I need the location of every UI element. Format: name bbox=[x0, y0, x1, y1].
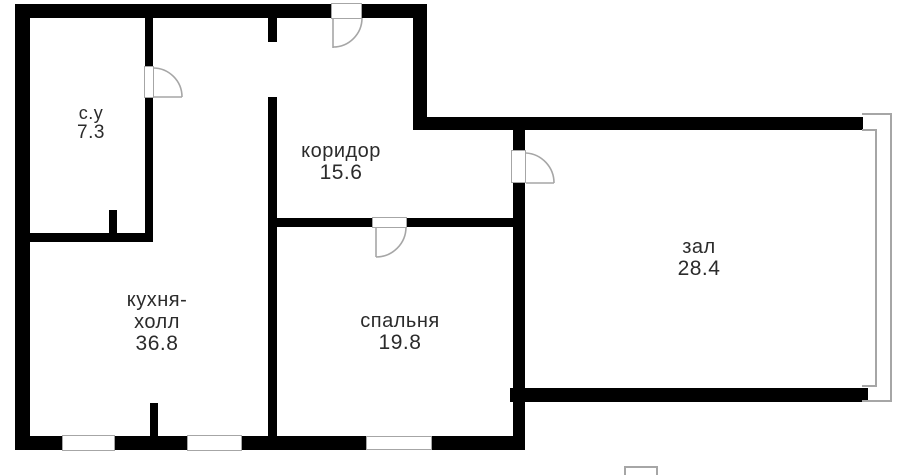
window-bedroom bbox=[366, 436, 432, 450]
wall-kitchen-stub bbox=[150, 403, 158, 436]
wall-corridor-left-stub bbox=[268, 18, 277, 42]
wall-outer-left bbox=[15, 4, 30, 450]
room-name-line2: холл bbox=[127, 311, 188, 333]
bathroom-door-arc bbox=[153, 68, 182, 97]
room-name: коридор bbox=[301, 140, 381, 162]
room-label-bathroom: с.у 7.3 bbox=[77, 104, 105, 142]
hall-window-inner-bottom bbox=[862, 385, 876, 387]
wall-bathroom-bottom bbox=[30, 233, 152, 242]
hall-door-arc bbox=[526, 153, 554, 183]
bathroom-door-frame bbox=[144, 66, 154, 98]
wall-corridor-right-upper bbox=[413, 4, 427, 130]
room-label-corridor: коридор 15.6 bbox=[301, 140, 381, 184]
room-area: 36.8 bbox=[127, 333, 188, 355]
window-kitchen-1 bbox=[62, 435, 115, 451]
window-kitchen-2 bbox=[187, 435, 242, 451]
entry-door-frame bbox=[331, 3, 362, 19]
room-label-bedroom: спальня 19.8 bbox=[360, 310, 439, 354]
wall-hall-top bbox=[413, 117, 863, 130]
hall-window-outer-bottom bbox=[862, 400, 892, 402]
room-area: 15.6 bbox=[301, 162, 381, 184]
wall-bathroom-stub bbox=[109, 210, 117, 236]
legend-box bbox=[624, 466, 658, 475]
wall-bathroom-right bbox=[145, 18, 153, 242]
bedroom-door-arc bbox=[376, 227, 406, 257]
room-area: 19.8 bbox=[360, 332, 439, 354]
wall-bedroom-left bbox=[268, 97, 277, 436]
room-label-kitchen-hall: кухня- холл 36.8 bbox=[127, 289, 188, 355]
hall-window-inner-top bbox=[862, 129, 876, 131]
room-name: кухня- bbox=[127, 289, 188, 311]
bedroom-door-frame bbox=[372, 217, 407, 228]
room-name: зал bbox=[678, 236, 721, 258]
room-name: с.у bbox=[77, 104, 105, 123]
entry-door-arc bbox=[333, 18, 362, 47]
room-label-hall: зал 28.4 bbox=[678, 236, 721, 280]
hall-window-outer-right bbox=[890, 113, 892, 402]
room-area: 7.3 bbox=[77, 123, 105, 142]
wall-hall-bottom bbox=[510, 388, 868, 402]
hall-window-outer-top bbox=[862, 113, 892, 115]
hall-window-inner-line bbox=[875, 129, 877, 387]
room-area: 28.4 bbox=[678, 258, 721, 280]
floor-plan: с.у 7.3 коридор 15.6 кухня- холл 36.8 сп… bbox=[0, 0, 910, 475]
hall-door-frame bbox=[511, 150, 526, 183]
room-name: спальня bbox=[360, 310, 439, 332]
wall-outer-top bbox=[15, 4, 427, 18]
